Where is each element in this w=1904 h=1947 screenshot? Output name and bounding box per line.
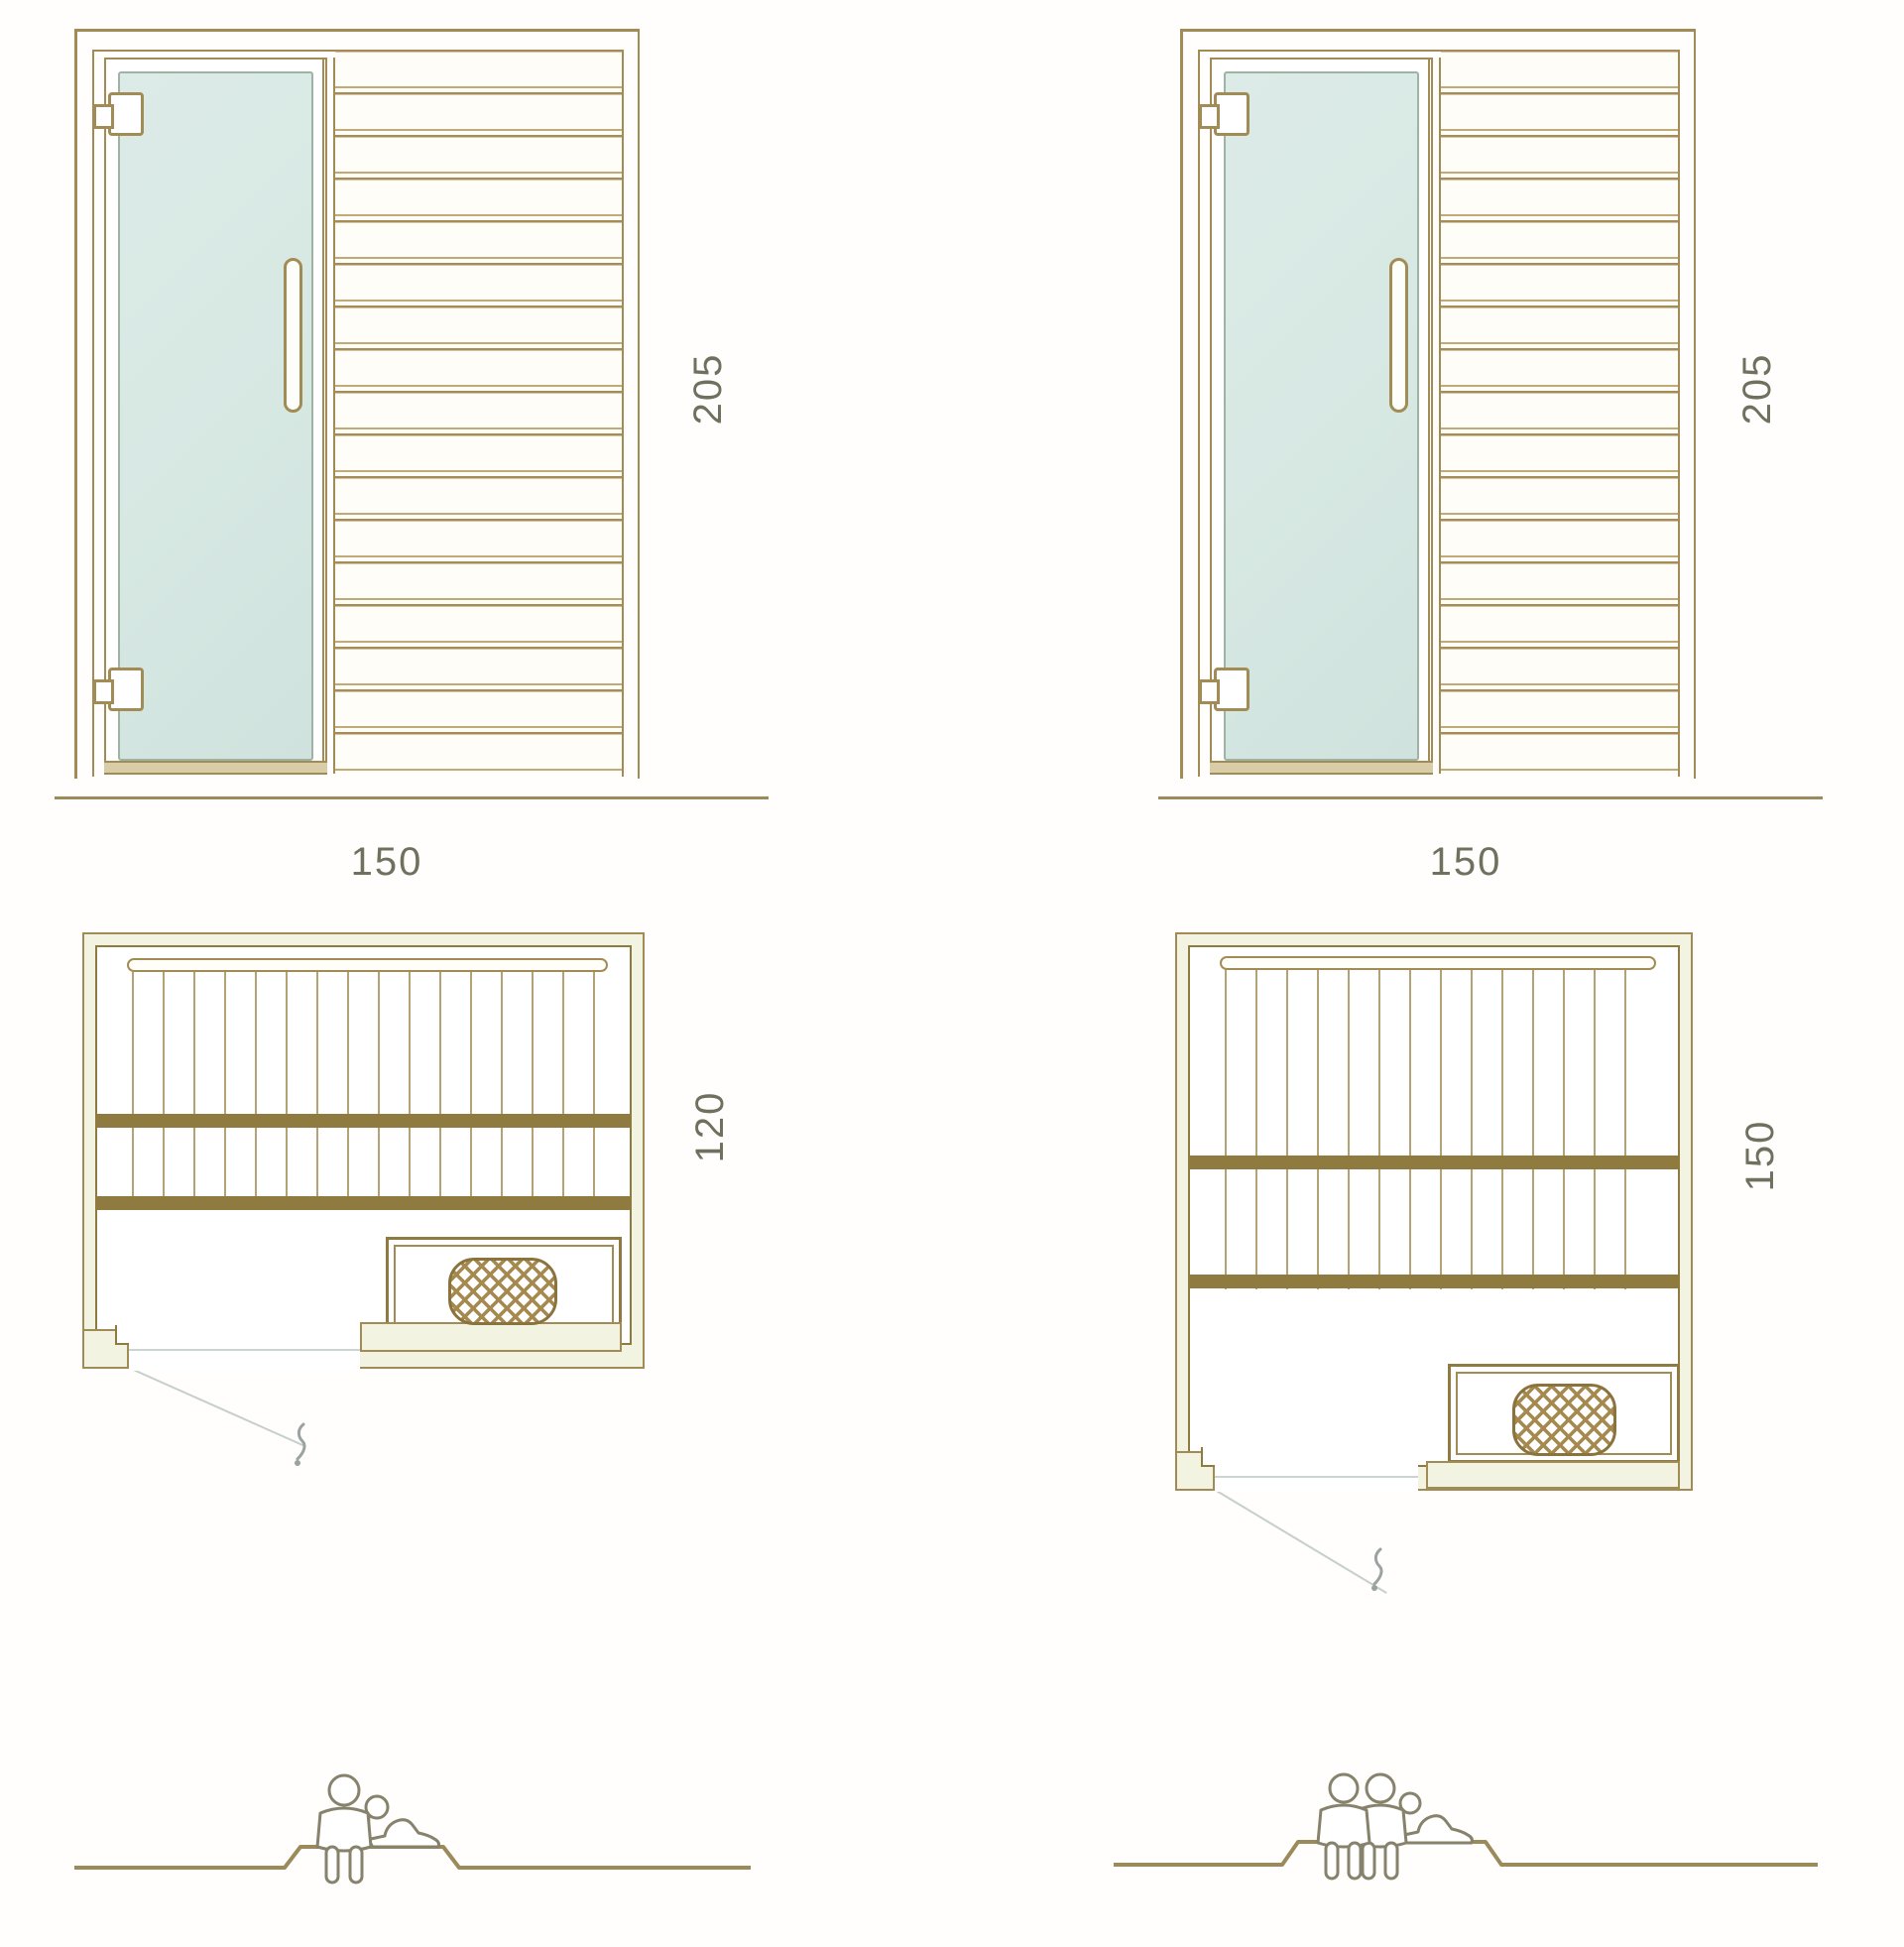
door-swing-line xyxy=(129,1367,306,1447)
upper-bench-edge xyxy=(95,1114,632,1128)
ground-line xyxy=(1114,1842,1818,1865)
sauna-drawing-sheet: 150 205 120 xyxy=(0,0,1904,1947)
door-panel-divider xyxy=(1428,58,1430,774)
reclining-person-icon xyxy=(1399,1793,1473,1843)
door-sill xyxy=(104,761,327,775)
backrest-rail xyxy=(127,958,608,972)
frame-right-post xyxy=(1694,29,1697,779)
dimension-depth-left: 120 xyxy=(660,1077,760,1176)
bench-slats xyxy=(132,972,605,1210)
frame-right-post xyxy=(638,29,641,779)
frame-left-post xyxy=(1180,29,1183,779)
heater-platform xyxy=(360,1322,622,1352)
door-hinge-icon xyxy=(1214,668,1249,711)
lower-bench-edge xyxy=(95,1196,632,1210)
front-elevation-left xyxy=(74,25,640,798)
capacity-people-icon-left xyxy=(59,1764,754,1897)
door-opening xyxy=(129,1337,360,1371)
dimension-height-left: 205 xyxy=(658,339,758,438)
wood-slat-panel xyxy=(1441,50,1680,774)
door-jamb-notch xyxy=(115,1325,129,1345)
upper-bench-edge xyxy=(1188,1156,1680,1169)
floor-plan-right xyxy=(1175,932,1693,1491)
door-swing-handle-glyph xyxy=(1366,1545,1391,1593)
door-panel-divider xyxy=(322,58,324,774)
dimension-width-left: 150 xyxy=(327,837,446,887)
door-hinge-icon xyxy=(1214,92,1249,136)
floor-plan-left xyxy=(82,932,645,1369)
heater-stove-icon xyxy=(448,1258,557,1325)
door-handle-icon xyxy=(1389,258,1408,413)
reclining-person-icon xyxy=(366,1796,439,1847)
dimension-width-right: 150 xyxy=(1406,837,1525,887)
front-elevation-right xyxy=(1180,25,1696,798)
door-sill xyxy=(1210,761,1433,775)
glass-door xyxy=(118,71,313,761)
ground-line xyxy=(55,796,769,799)
heater-stove-icon xyxy=(1512,1384,1616,1456)
door-handle-icon xyxy=(284,258,302,413)
door-threshold-line xyxy=(129,1349,360,1351)
frame-top-line xyxy=(74,29,640,32)
lower-bench-edge xyxy=(1188,1275,1680,1288)
wood-slat-panel xyxy=(335,50,624,774)
bench-slats xyxy=(1225,970,1653,1289)
capacity-people-icon-right xyxy=(1091,1764,1825,1897)
glass-door xyxy=(1224,71,1419,761)
door-swing-handle-glyph xyxy=(289,1420,314,1468)
door-hinge-icon xyxy=(108,668,144,711)
backrest-rail xyxy=(1220,956,1656,970)
dimension-height-right: 205 xyxy=(1708,339,1807,438)
ground-line xyxy=(74,1847,751,1868)
ground-line xyxy=(1158,796,1823,799)
dimension-depth-right: 150 xyxy=(1711,1106,1810,1205)
door-hinge-icon xyxy=(108,92,144,136)
frame-top-line xyxy=(1180,29,1696,32)
frame-left-post-inner xyxy=(92,50,94,777)
frame-left-post-inner xyxy=(1198,50,1200,777)
heater-platform xyxy=(1426,1461,1680,1489)
seated-person-icon xyxy=(1318,1774,1369,1879)
frame-left-post xyxy=(74,29,77,779)
seated-person-icon xyxy=(317,1775,371,1883)
door-threshold-line xyxy=(1215,1476,1418,1478)
door-swing-line xyxy=(1214,1489,1386,1594)
door-opening xyxy=(1215,1458,1418,1492)
door-jamb-notch xyxy=(1201,1447,1215,1467)
